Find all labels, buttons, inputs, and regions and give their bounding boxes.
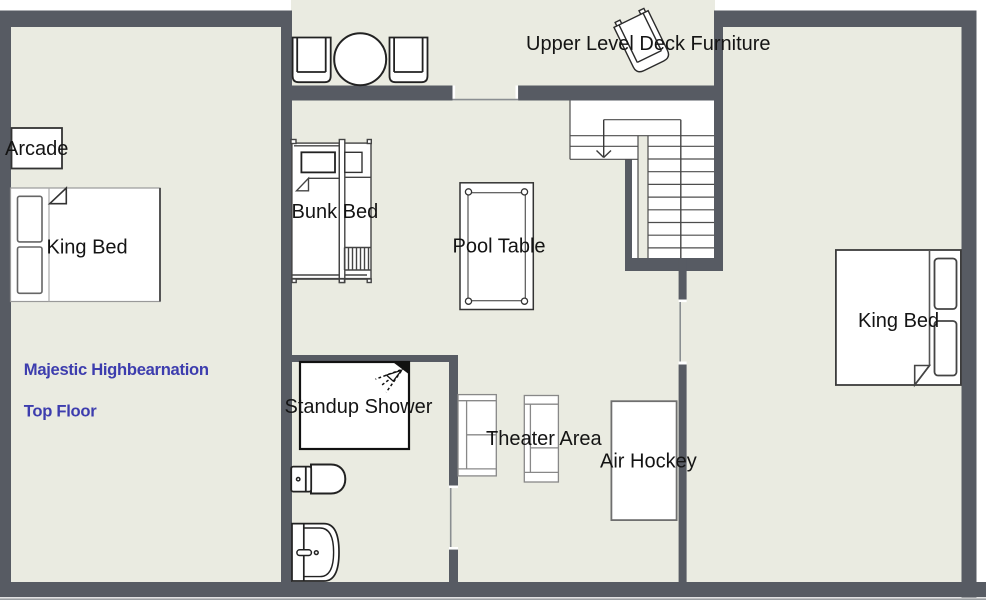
svg-text:Theater Area: Theater Area <box>486 428 603 450</box>
svg-text:Bunk Bed: Bunk Bed <box>292 201 379 223</box>
svg-text:King Bed: King Bed <box>858 310 939 332</box>
svg-text:Arcade: Arcade <box>5 138 68 160</box>
svg-text:King Bed: King Bed <box>47 237 128 259</box>
svg-text:Air Hockey: Air Hockey <box>600 451 697 473</box>
svg-text:Majestic Highbearnation: Majestic Highbearnation <box>24 360 209 379</box>
svg-text:Top Floor: Top Floor <box>24 402 97 421</box>
svg-text:Pool Table: Pool Table <box>453 236 546 258</box>
svg-text:Standup Shower: Standup Shower <box>285 396 433 418</box>
svg-text:Upper Level Deck Furniture: Upper Level Deck Furniture <box>526 33 771 55</box>
